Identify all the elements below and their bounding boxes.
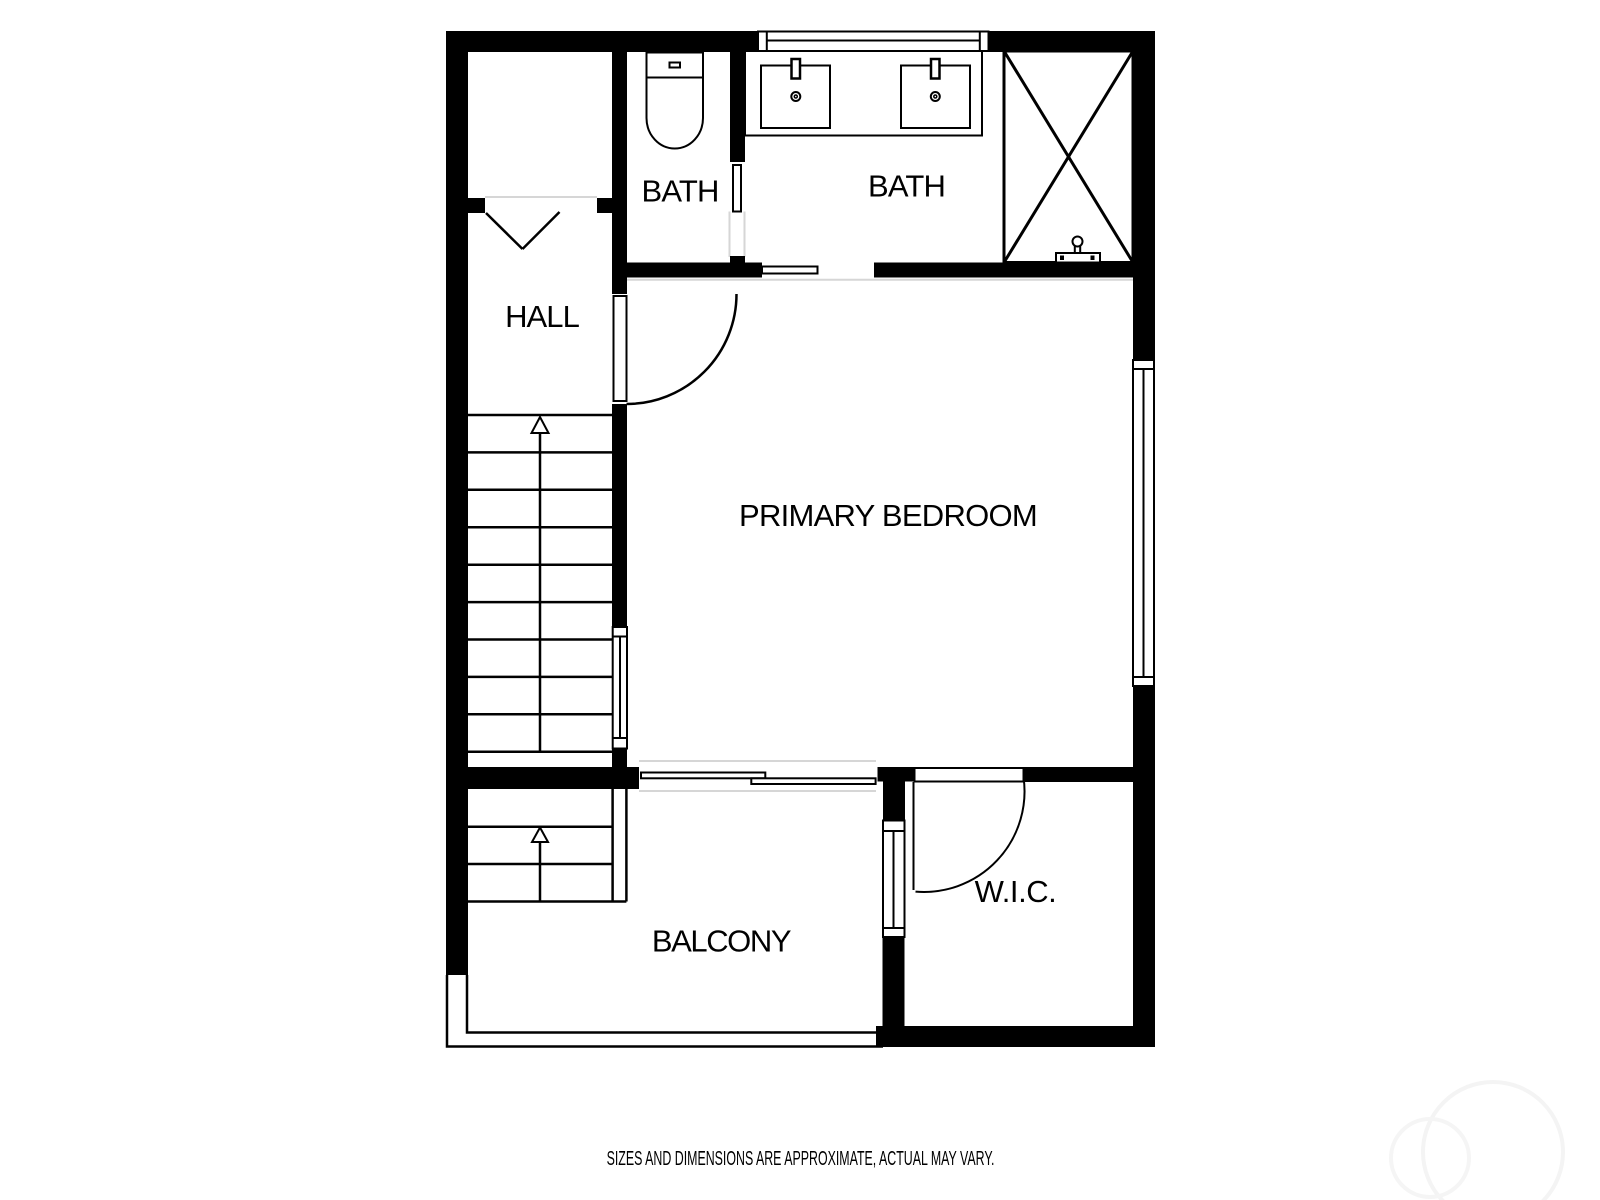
svg-text:PRIMARY BEDROOM: PRIMARY BEDROOM (739, 498, 1037, 533)
svg-text:SIZES AND DIMENSIONS ARE APPRO: SIZES AND DIMENSIONS ARE APPROXIMATE, AC… (607, 1147, 995, 1170)
svg-text:BATH: BATH (868, 168, 945, 203)
svg-text:BATH: BATH (642, 173, 719, 208)
svg-text:W.I.C.: W.I.C. (975, 874, 1057, 909)
svg-text:BALCONY: BALCONY (652, 923, 791, 958)
svg-text:HALL: HALL (505, 299, 579, 334)
